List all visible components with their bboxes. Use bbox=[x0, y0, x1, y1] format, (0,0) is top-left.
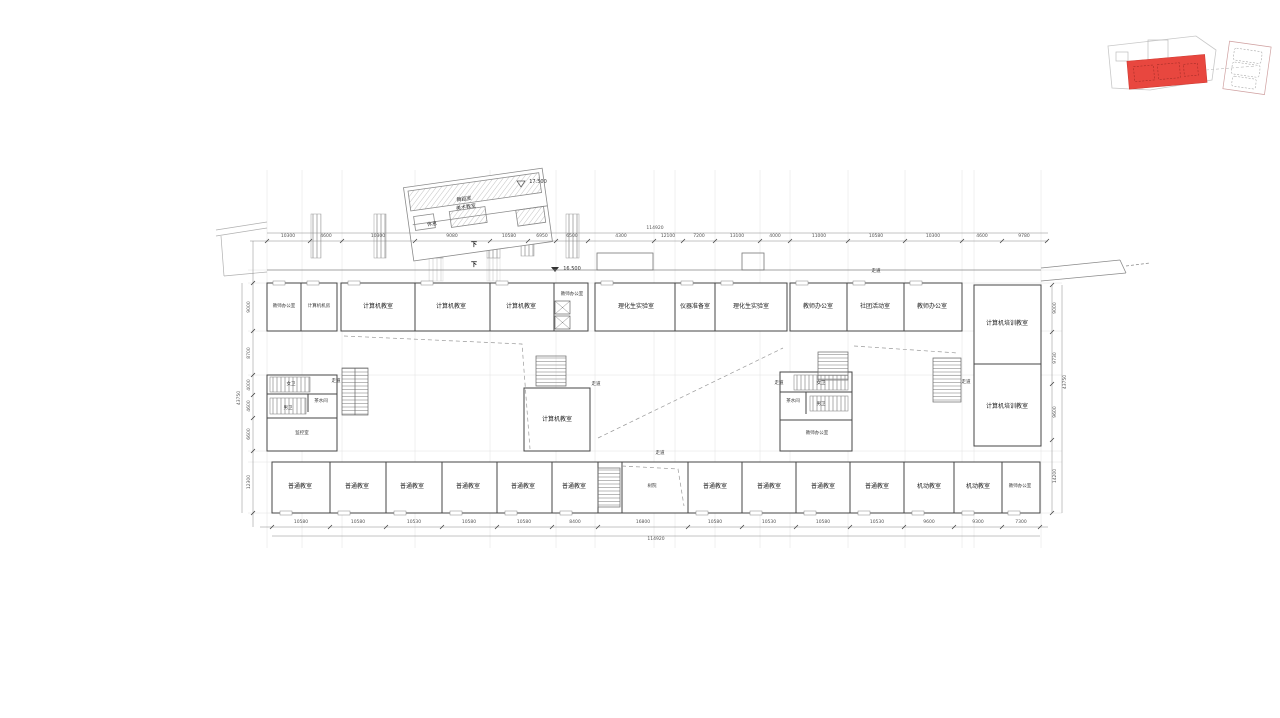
room-label: 教师办公室 bbox=[561, 293, 584, 298]
floor-plan-sheet: 教师办公室 计算机机房 计算机教室 计算机教室 计算机教室 教师办公室 理化生实… bbox=[0, 0, 1280, 718]
dim-left: 9000 bbox=[248, 301, 253, 312]
room-label: 普通教室 bbox=[757, 484, 781, 490]
dim-left: 4000 bbox=[248, 379, 253, 390]
annex-room-label: 休息 bbox=[427, 220, 438, 228]
dim-top-total: 114920 bbox=[646, 227, 663, 232]
dim-top: 4600 bbox=[320, 235, 331, 240]
dim-top: 4300 bbox=[615, 235, 626, 240]
corridor-label: 走道 bbox=[592, 383, 601, 388]
dim-top: 4000 bbox=[769, 235, 780, 240]
dim-left: 6600 bbox=[248, 428, 253, 439]
room-label: 普通教室 bbox=[811, 484, 835, 490]
dim-top: 7200 bbox=[693, 235, 704, 240]
dim-top: 11000 bbox=[812, 235, 826, 240]
room-label: 理化生实验室 bbox=[733, 304, 769, 310]
room-label: 计算机培训教室 bbox=[986, 404, 1028, 410]
dim-bottom: 10580 bbox=[462, 521, 476, 526]
room-label: 普通教室 bbox=[865, 484, 889, 490]
room-label: 女卫 bbox=[287, 383, 296, 388]
room-label: 普通教室 bbox=[562, 484, 586, 490]
dim-top: 12100 bbox=[661, 235, 675, 240]
dim-top: 6500 bbox=[566, 235, 577, 240]
corridor-label: 走道 bbox=[775, 382, 784, 387]
dim-right: 9600 bbox=[1054, 406, 1059, 417]
room-label: 茶水间 bbox=[786, 400, 800, 405]
room-label: 教师办公室 bbox=[806, 432, 829, 437]
room-label: 计算机教室 bbox=[506, 304, 536, 310]
key-plan bbox=[1108, 36, 1271, 95]
dim-bottom: 10580 bbox=[351, 521, 365, 526]
dim-top: 9080 bbox=[446, 235, 457, 240]
site-boundary-lines bbox=[216, 222, 267, 276]
stair-down-mark: 下 bbox=[471, 260, 477, 269]
dim-bottom: 10580 bbox=[294, 521, 308, 526]
room-label: 教师办公室 bbox=[273, 305, 296, 310]
dim-right: 9000 bbox=[1054, 302, 1059, 313]
floor-plan-drawing bbox=[0, 0, 1280, 718]
room-label: 茶水间 bbox=[314, 400, 328, 405]
dim-left: 4600 bbox=[248, 400, 253, 411]
room-label: 机动教室 bbox=[966, 484, 990, 490]
corridor-label: 走道 bbox=[962, 381, 971, 386]
dim-bottom: 10530 bbox=[762, 521, 776, 526]
dim-bottom: 10580 bbox=[517, 521, 531, 526]
dim-left: 8700 bbox=[248, 347, 253, 358]
dim-top: 4600 bbox=[976, 235, 987, 240]
room-label: 树院 bbox=[648, 485, 657, 490]
dim-top: 10300 bbox=[926, 235, 940, 240]
dim-right-total: 43750 bbox=[1064, 375, 1069, 389]
room-label: 计算机培训教室 bbox=[986, 321, 1028, 327]
dim-bottom: 7300 bbox=[1015, 521, 1026, 526]
dim-top: 9780 bbox=[1018, 235, 1029, 240]
dim-bottom: 10530 bbox=[870, 521, 884, 526]
dim-bottom: 10580 bbox=[816, 521, 830, 526]
room-label: 监控室 bbox=[295, 432, 309, 437]
room-label: 教师办公室 bbox=[1009, 485, 1032, 490]
dim-right: 14200 bbox=[1054, 469, 1059, 483]
room-label: 教师办公室 bbox=[803, 304, 833, 310]
dim-top: 10300 bbox=[371, 235, 385, 240]
room-label: 计算机机房 bbox=[308, 305, 331, 310]
corridor-label: 走道 bbox=[872, 270, 881, 275]
dim-bottom: 10580 bbox=[708, 521, 722, 526]
dim-bottom: 9300 bbox=[972, 521, 983, 526]
room-label: 女卫 bbox=[817, 382, 826, 387]
dim-bottom-total: 114920 bbox=[647, 538, 664, 543]
room-label: 男卫 bbox=[284, 407, 293, 412]
dim-left: 12300 bbox=[248, 475, 253, 489]
dim-top: 13100 bbox=[730, 235, 744, 240]
dim-left-total: 43750 bbox=[238, 391, 243, 405]
dim-top: 10580 bbox=[869, 235, 883, 240]
room-label: 普通教室 bbox=[511, 484, 535, 490]
key-plan-highlighted-building bbox=[1127, 54, 1207, 89]
room-label: 计算机教室 bbox=[363, 304, 393, 310]
dim-top: 10300 bbox=[281, 235, 295, 240]
key-plan-adjacent-building bbox=[1223, 41, 1271, 94]
dim-bottom: 10530 bbox=[407, 521, 421, 526]
level-annex: 17.500 bbox=[529, 179, 547, 185]
room-label: 机动教室 bbox=[917, 484, 941, 490]
room-label: 理化生实验室 bbox=[618, 304, 654, 310]
room-label: 普通教室 bbox=[703, 484, 727, 490]
room-label: 普通教室 bbox=[288, 484, 312, 490]
dim-top: 10580 bbox=[502, 235, 516, 240]
room-label: 男卫 bbox=[817, 403, 826, 408]
dim-bottom: 16800 bbox=[636, 521, 650, 526]
room-label: 普通教室 bbox=[345, 484, 369, 490]
stair-down-mark: 下 bbox=[471, 240, 477, 249]
roof-lines bbox=[267, 253, 1150, 281]
room-label: 计算机教室 bbox=[436, 304, 466, 310]
room-label: 普通教室 bbox=[456, 484, 480, 490]
room-label: 计算机教室 bbox=[542, 417, 572, 423]
dim-top: 6950 bbox=[536, 235, 547, 240]
room-label: 普通教室 bbox=[400, 484, 424, 490]
dim-right: 9730 bbox=[1054, 352, 1059, 363]
corridor-label: 走道 bbox=[332, 380, 341, 385]
room-label: 教师办公室 bbox=[917, 304, 947, 310]
room-label: 仪器准备室 bbox=[680, 304, 710, 310]
room-label: 社团活动室 bbox=[860, 304, 890, 310]
dim-bottom: 8400 bbox=[569, 521, 580, 526]
level-main: 16.500 bbox=[563, 266, 581, 272]
corridor-label: 走道 bbox=[656, 452, 665, 457]
dim-bottom: 9600 bbox=[923, 521, 934, 526]
